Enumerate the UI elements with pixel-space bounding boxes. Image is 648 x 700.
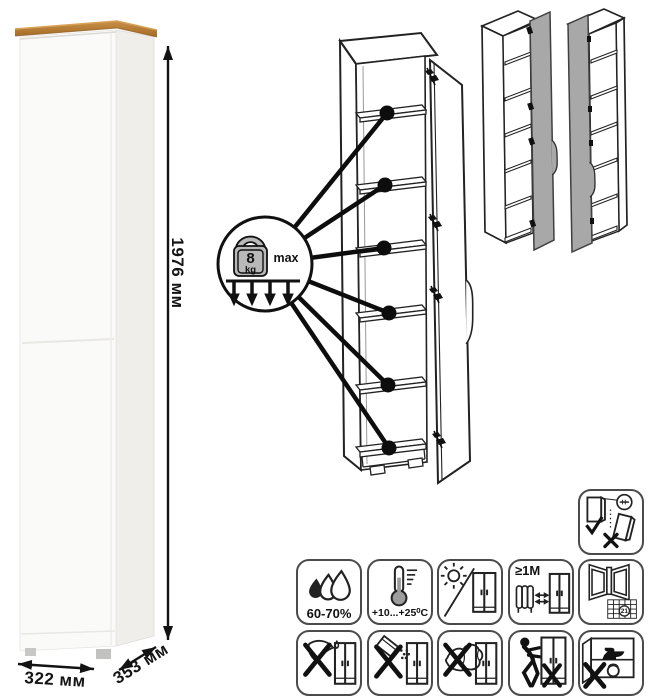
no-abrasive-powder-icon <box>369 632 430 693</box>
calendar-day: 21 <box>621 608 629 615</box>
furniture-spec-sheet: 1976 мм 322 мм 353 мм <box>0 0 648 700</box>
open-cabinet-drawing <box>340 33 473 483</box>
no-heavy-load-icon <box>580 632 641 693</box>
sunlight-tile <box>437 559 503 625</box>
x-mark <box>544 665 560 685</box>
width-dimension-label: 322 мм <box>24 668 86 692</box>
base-foot <box>408 458 423 468</box>
base-foot <box>370 465 385 475</box>
temperature-tile: +10...+25⁰C <box>367 559 433 625</box>
cabinet-photo <box>0 0 210 700</box>
door-left-variant <box>568 9 627 252</box>
open-door <box>430 60 473 483</box>
no-dragging-tile <box>508 630 574 696</box>
no-wet-sponge-tile <box>437 630 503 696</box>
no-sharp-tools-tile <box>296 630 362 696</box>
cabinet-render <box>15 21 157 659</box>
no-wet-sponge-icon <box>439 632 500 693</box>
door-variant-drawings <box>470 0 648 262</box>
distance-arrows <box>535 593 548 604</box>
wardrobe-glyph <box>335 643 355 684</box>
powder-dots <box>400 649 410 659</box>
gray-door <box>568 15 592 252</box>
ventilation-tile: 21 <box>578 559 644 625</box>
person-glyph <box>520 638 540 686</box>
no-overload-tile <box>578 630 644 696</box>
wall-anchoring-icon <box>580 491 641 552</box>
door-handle <box>552 140 558 175</box>
radiator-glyph <box>516 586 533 613</box>
cabinet-foot <box>25 648 36 656</box>
wardrobe-glyph <box>407 643 427 684</box>
sun-shade-icon <box>439 561 500 622</box>
min-distance-label: ≥1М <box>515 563 540 578</box>
max-label: max <box>273 251 298 265</box>
humidity-label: 60-70% <box>298 606 360 621</box>
heat-distance-tile: ≥1М <box>508 559 574 625</box>
kettlebell-weight-icon: 8 kg <box>234 237 267 276</box>
cabinet-foot <box>96 649 111 659</box>
shelf-load-diagram: 8 kg max <box>210 0 480 510</box>
door-handle <box>466 280 473 344</box>
humidity-tile: 60-70% <box>296 559 362 625</box>
gray-door <box>530 12 554 250</box>
height-dimension-label: 1976 мм <box>167 237 187 308</box>
wardrobe-glyph <box>473 573 495 612</box>
wardrobe-glyph <box>550 574 569 613</box>
load-unit: kg <box>245 265 256 276</box>
max-load-badge: 8 kg max <box>218 217 312 311</box>
open-window-calendar-icon: 21 <box>580 561 641 622</box>
no-sharp-tools-icon <box>298 632 359 693</box>
door-right-variant <box>482 11 557 250</box>
no-dragging-icon <box>510 632 571 693</box>
no-abrasive-tile <box>367 630 433 696</box>
anti-tip-tile <box>578 489 644 555</box>
temperature-label: +10...+25⁰C <box>369 607 431 619</box>
